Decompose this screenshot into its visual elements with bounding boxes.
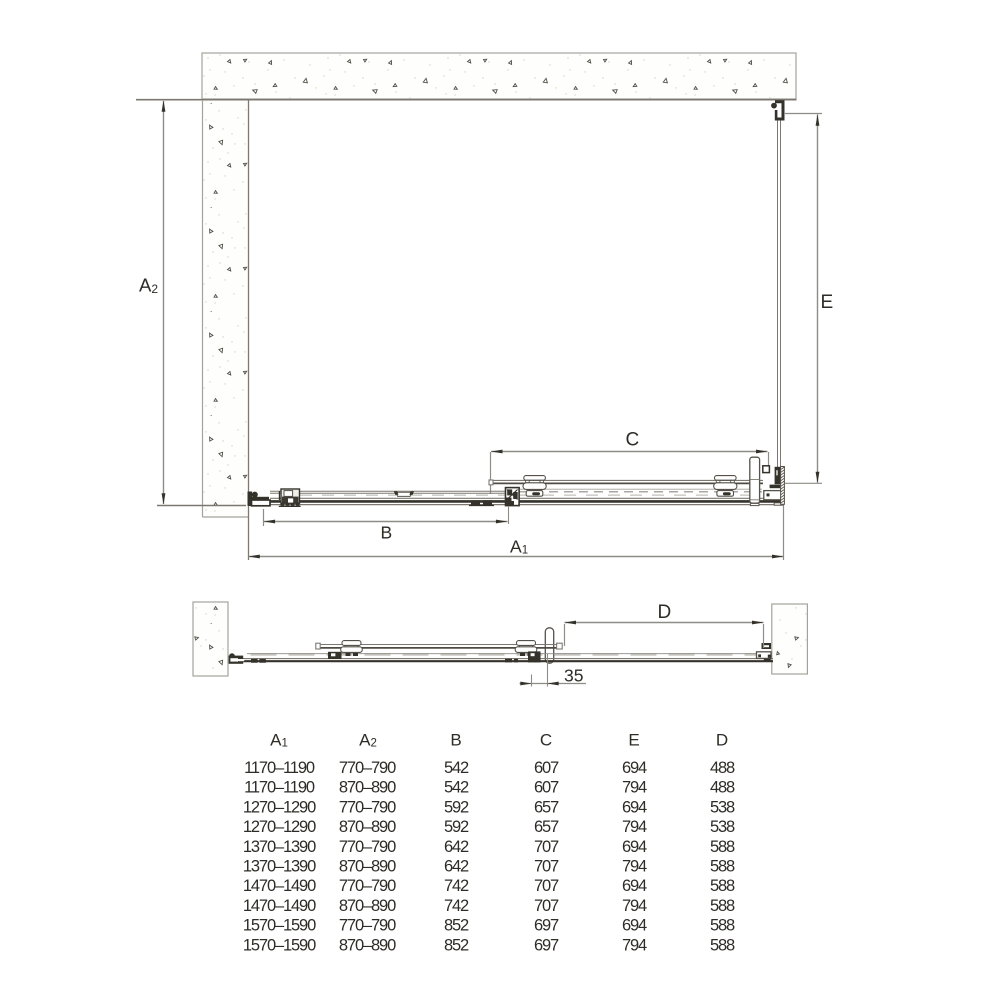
svg-text:588: 588 [710,877,735,895]
svg-text:697: 697 [534,917,559,935]
svg-text:1270–1290: 1270–1290 [243,798,316,816]
svg-text:657: 657 [534,798,559,816]
svg-text:794: 794 [622,779,647,797]
svg-text:607: 607 [534,759,559,777]
svg-text:870–890: 870–890 [339,818,396,836]
svg-text:694: 694 [622,759,647,777]
svg-text:707: 707 [534,897,559,915]
svg-text:742: 742 [444,877,469,895]
svg-text:A1: A1 [510,537,528,557]
svg-text:707: 707 [534,838,559,856]
svg-text:1170–1190: 1170–1190 [244,779,315,797]
svg-text:1170–1190: 1170–1190 [244,759,315,777]
svg-text:1470–1490: 1470–1490 [243,877,316,895]
svg-text:694: 694 [622,838,647,856]
svg-text:697: 697 [534,936,559,954]
svg-text:642: 642 [444,838,469,856]
svg-text:870–890: 870–890 [339,936,396,954]
svg-text:657: 657 [534,818,559,836]
svg-text:538: 538 [710,798,735,816]
svg-text:D: D [658,602,672,623]
svg-text:694: 694 [622,877,647,895]
svg-text:588: 588 [710,897,735,915]
svg-text:794: 794 [622,818,647,836]
svg-text:538: 538 [710,818,735,836]
svg-text:742: 742 [444,897,469,915]
svg-text:870–890: 870–890 [339,779,396,797]
svg-text:1370–1390: 1370–1390 [243,838,316,856]
svg-text:E: E [628,731,639,750]
svg-text:694: 694 [622,798,647,816]
svg-text:707: 707 [534,877,559,895]
svg-text:B: B [450,731,461,750]
svg-text:D: D [716,731,728,750]
svg-text:694: 694 [622,917,647,935]
svg-text:770–790: 770–790 [339,759,396,777]
svg-text:588: 588 [710,838,735,856]
svg-text:794: 794 [622,936,647,954]
svg-text:588: 588 [710,917,735,935]
svg-text:588: 588 [710,936,735,954]
svg-text:542: 542 [444,759,469,777]
svg-text:852: 852 [444,936,469,954]
svg-text:770–790: 770–790 [339,798,396,816]
svg-text:1270–1290: 1270–1290 [243,818,316,836]
svg-text:1570–1590: 1570–1590 [243,936,316,954]
svg-text:35: 35 [564,666,583,686]
svg-text:A2: A2 [359,731,377,750]
svg-text:A1: A1 [270,731,288,750]
svg-text:794: 794 [622,897,647,915]
svg-text:707: 707 [534,858,559,876]
svg-text:C: C [540,731,552,750]
svg-text:C: C [626,430,640,451]
svg-text:770–790: 770–790 [339,838,396,856]
svg-text:542: 542 [444,779,469,797]
svg-text:E: E [821,292,834,313]
svg-text:1370–1390: 1370–1390 [243,858,316,876]
svg-text:588: 588 [710,858,735,876]
svg-text:592: 592 [444,818,469,836]
svg-text:607: 607 [534,779,559,797]
svg-text:770–790: 770–790 [339,877,396,895]
svg-text:642: 642 [444,858,469,876]
svg-text:488: 488 [710,779,735,797]
svg-text:770–790: 770–790 [339,917,396,935]
svg-text:870–890: 870–890 [339,858,396,876]
svg-text:1470–1490: 1470–1490 [243,897,316,915]
svg-text:1570–1590: 1570–1590 [243,917,316,935]
svg-text:592: 592 [444,798,469,816]
svg-text:488: 488 [710,759,735,777]
svg-text:870–890: 870–890 [339,897,396,915]
svg-text:794: 794 [622,858,647,876]
svg-text:A2: A2 [139,275,158,297]
svg-text:B: B [381,523,393,543]
svg-text:852: 852 [444,917,469,935]
